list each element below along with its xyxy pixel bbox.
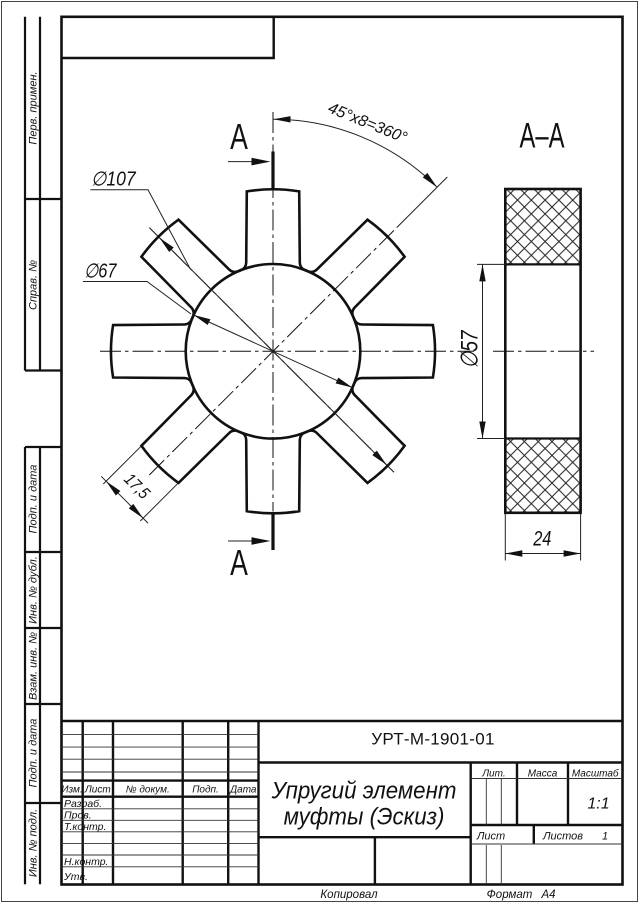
svg-text:Пров.: Пров. xyxy=(64,810,92,822)
svg-text:24: 24 xyxy=(532,527,551,550)
svg-text:Перв. примен.: Перв. примен. xyxy=(28,71,40,144)
svg-text:Лист: Лист xyxy=(476,831,505,843)
svg-text:Подп. и дата: Подп. и дата xyxy=(28,719,40,788)
svg-text:Подп.: Подп. xyxy=(192,785,219,796)
svg-text:А–А: А–А xyxy=(520,117,565,156)
svg-text:Изм.: Изм. xyxy=(61,785,82,796)
svg-text:А: А xyxy=(230,542,249,583)
svg-text:17,5: 17,5 xyxy=(120,470,153,503)
svg-text:Справ. №: Справ. № xyxy=(28,260,40,310)
svg-text:Копировал: Копировал xyxy=(320,889,378,901)
svg-text:Дата: Дата xyxy=(229,785,257,796)
svg-text:Лист: Лист xyxy=(84,785,111,796)
svg-text:∅67: ∅67 xyxy=(84,259,117,282)
svg-text:муфты (Эскиз): муфты (Эскиз) xyxy=(284,803,445,830)
svg-text:А: А xyxy=(230,116,249,157)
svg-text:Листов: Листов xyxy=(542,831,583,843)
svg-text:Разраб.: Разраб. xyxy=(64,798,102,810)
svg-text:∅57: ∅57 xyxy=(455,330,483,369)
svg-text:Утв.: Утв. xyxy=(63,871,88,883)
svg-text:Масса: Масса xyxy=(528,769,558,780)
svg-text:А4: А4 xyxy=(540,889,555,901)
svg-text:∅107: ∅107 xyxy=(91,167,137,189)
svg-text:Подп. и дата: Подп. и дата xyxy=(28,465,40,534)
svg-text:1: 1 xyxy=(602,831,608,843)
svg-text:№ докум.: № докум. xyxy=(126,785,170,796)
svg-text:Масштаб: Масштаб xyxy=(572,768,619,780)
svg-text:Т.контр.: Т.контр. xyxy=(64,821,106,833)
svg-text:Формат: Формат xyxy=(487,889,533,901)
svg-text:Инв. № дубл.: Инв. № дубл. xyxy=(28,556,40,624)
svg-text:Взам. инв. №: Взам. инв. № xyxy=(28,632,40,700)
svg-text:Упругий элемент: Упругий элемент xyxy=(271,777,457,804)
svg-text:Н.контр.: Н.контр. xyxy=(64,856,108,868)
svg-text:1:1: 1:1 xyxy=(587,796,609,813)
svg-text:45°х8=360°: 45°х8=360° xyxy=(326,100,410,147)
svg-text:УРТ-М-1901-01: УРТ-М-1901-01 xyxy=(371,730,495,749)
svg-text:Инв. № подл.: Инв. № подл. xyxy=(28,809,40,877)
svg-text:Лит.: Лит. xyxy=(481,769,505,780)
